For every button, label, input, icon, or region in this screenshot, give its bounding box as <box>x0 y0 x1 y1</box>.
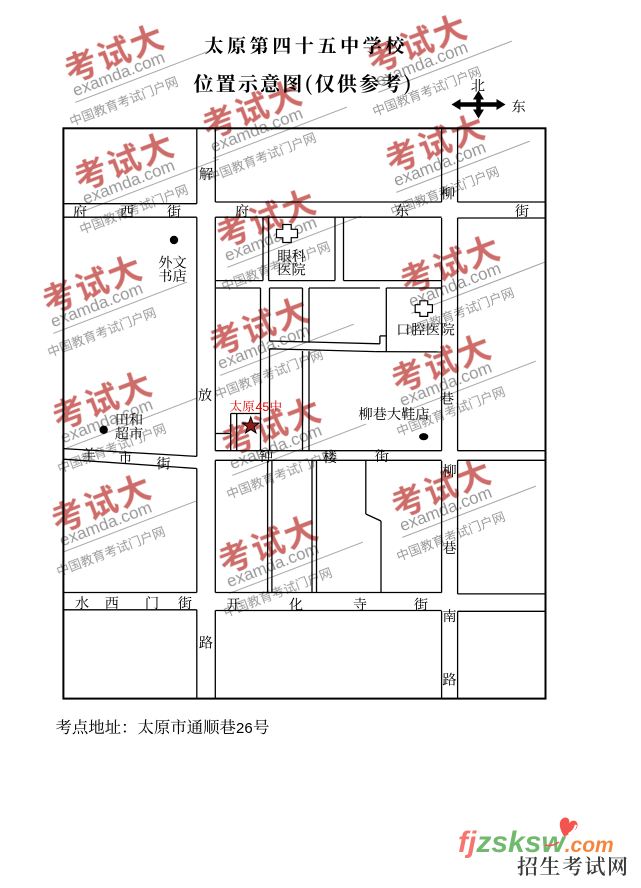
svg-text:45: 45 <box>256 400 270 414</box>
svg-text:26: 26 <box>236 720 253 737</box>
